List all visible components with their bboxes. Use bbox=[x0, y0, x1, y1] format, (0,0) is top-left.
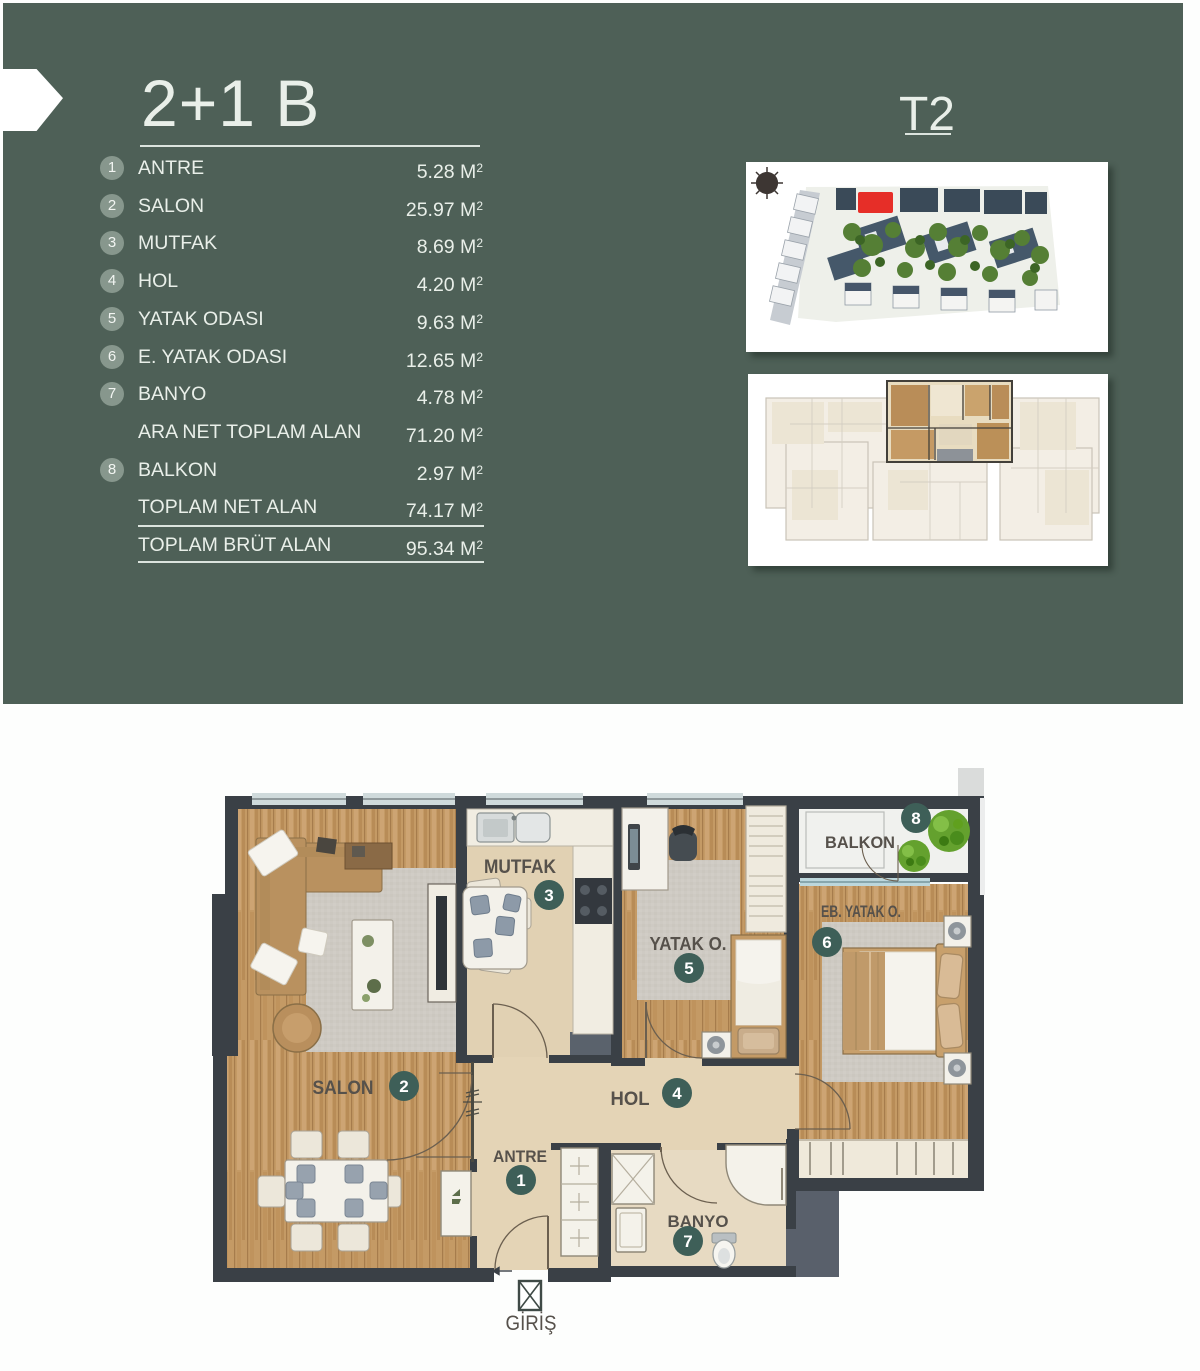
svg-text:2: 2 bbox=[399, 1077, 408, 1096]
svg-text:SALON: SALON bbox=[313, 1078, 374, 1099]
svg-text:5: 5 bbox=[684, 959, 693, 978]
svg-text:HOL: HOL bbox=[611, 1089, 650, 1110]
svg-text:EB. YATAK O.: EB. YATAK O. bbox=[821, 902, 901, 921]
svg-text:MUTFAK: MUTFAK bbox=[484, 857, 556, 878]
svg-text:3: 3 bbox=[544, 886, 553, 905]
svg-text:BALKON: BALKON bbox=[825, 833, 895, 852]
svg-text:8: 8 bbox=[911, 809, 920, 828]
svg-text:7: 7 bbox=[683, 1232, 692, 1251]
svg-text:4: 4 bbox=[672, 1084, 682, 1103]
svg-text:ANTRE: ANTRE bbox=[493, 1147, 547, 1166]
svg-text:YATAK O.: YATAK O. bbox=[650, 934, 727, 954]
svg-text:BANYO: BANYO bbox=[668, 1212, 729, 1231]
svg-text:GİRİŞ: GİRİŞ bbox=[506, 1312, 557, 1335]
svg-text:6: 6 bbox=[822, 933, 831, 952]
svg-text:1: 1 bbox=[516, 1171, 525, 1190]
